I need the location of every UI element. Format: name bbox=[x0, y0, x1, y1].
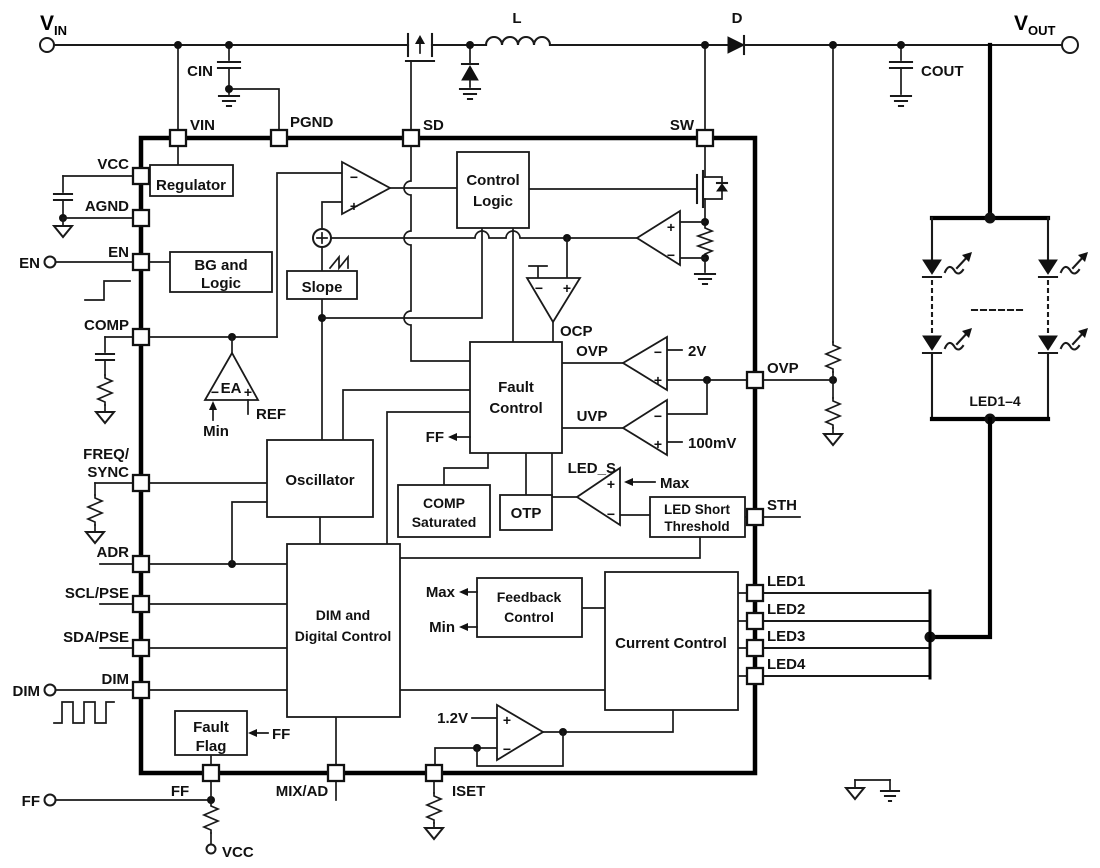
resistor-icon bbox=[88, 495, 102, 525]
led-icon bbox=[923, 328, 972, 353]
plus-sign: + bbox=[607, 476, 615, 492]
pin-comp bbox=[133, 329, 149, 345]
ground-earth-icon bbox=[695, 274, 715, 284]
vcc-terminal bbox=[207, 845, 216, 854]
ff-network bbox=[45, 781, 219, 854]
ref-100mv-label: 100mV bbox=[688, 435, 736, 452]
diode-label: D bbox=[732, 10, 743, 27]
led-s-label: LED_S bbox=[568, 460, 616, 477]
pin-sth bbox=[747, 509, 763, 525]
pin-led4 bbox=[747, 668, 763, 684]
bg-logic-label-1: BG and bbox=[194, 257, 247, 274]
pin-vcc bbox=[133, 168, 149, 184]
vout-terminal bbox=[1062, 37, 1078, 53]
pin-vin bbox=[170, 130, 186, 146]
ground-arrow-icon bbox=[425, 828, 443, 839]
control-logic-block bbox=[457, 152, 529, 228]
pin-ff bbox=[203, 765, 219, 781]
pin-label-ovp: OVP bbox=[767, 360, 799, 377]
pin-label-pgnd: PGND bbox=[290, 114, 334, 131]
dim-network bbox=[45, 685, 134, 724]
bg-logic-label-2: Logic bbox=[201, 275, 241, 292]
pin-label-vin: VIN bbox=[190, 117, 215, 134]
led-icon bbox=[1039, 328, 1088, 353]
arrow-left-icon bbox=[248, 729, 257, 737]
ea-label: EA bbox=[221, 380, 242, 397]
pin-label-en: EN bbox=[108, 244, 129, 261]
plus-sign: + bbox=[667, 219, 675, 235]
vin-terminal bbox=[40, 38, 54, 52]
comp-saturated-label-2: Saturated bbox=[412, 514, 477, 530]
diagram-canvas: VIN VOUT CIN COUT L D LED1–4 EN DIM FF V… bbox=[0, 0, 1100, 863]
resistor-icon bbox=[826, 398, 840, 428]
pin-label-agnd: AGND bbox=[85, 198, 129, 215]
ground-arrow-icon bbox=[54, 226, 72, 237]
otp-label: OTP bbox=[511, 505, 542, 522]
external-mosfet bbox=[406, 34, 434, 130]
ground-earth-icon bbox=[891, 96, 911, 106]
pin-ovp bbox=[747, 372, 763, 388]
ground-earth-icon bbox=[219, 96, 239, 106]
dim-terminal bbox=[45, 685, 56, 696]
minus-sign: − bbox=[654, 344, 662, 360]
plus-sign: + bbox=[654, 436, 662, 452]
pin-label-sda: SDA/PSE bbox=[63, 629, 129, 646]
fault-control-label-2: Control bbox=[489, 400, 542, 417]
fault-control-label-1: Fault bbox=[498, 379, 534, 396]
resistor-icon bbox=[427, 793, 441, 823]
pin-pgnd bbox=[271, 130, 287, 146]
ground-arrow-icon bbox=[96, 412, 114, 423]
pin-label-mixad: MIX/AD bbox=[276, 783, 329, 800]
vin-title: VIN bbox=[40, 12, 67, 38]
pin-label-comp: COMP bbox=[84, 317, 129, 334]
cout-label: COUT bbox=[921, 63, 964, 80]
en-network bbox=[45, 257, 134, 301]
ground-earth-icon bbox=[881, 791, 899, 801]
ovp-signal-label: OVP bbox=[576, 343, 608, 360]
led-group-label: LED1–4 bbox=[969, 393, 1021, 409]
pin-led2 bbox=[747, 613, 763, 629]
vcc-terminal-label: VCC bbox=[222, 844, 254, 861]
resistor-icon bbox=[698, 226, 712, 256]
ff-in-label: FF bbox=[272, 726, 290, 743]
uvp-signal-label: UVP bbox=[577, 408, 608, 425]
iset-network bbox=[425, 781, 443, 839]
vout-title: VOUT bbox=[1014, 12, 1056, 38]
minus-sign: − bbox=[654, 408, 662, 424]
internal-mosfet bbox=[697, 146, 727, 222]
regulator-label: Regulator bbox=[156, 177, 226, 194]
minus-sign: − bbox=[211, 384, 219, 400]
pin-label-led2: LED2 bbox=[767, 601, 805, 618]
ground-arrow-icon bbox=[824, 434, 842, 445]
body-diode-icon bbox=[717, 184, 727, 191]
pin-scl-pse bbox=[133, 596, 149, 612]
pin-label-ff: FF bbox=[171, 783, 189, 800]
fault-flag-label-2: Flag bbox=[196, 738, 227, 755]
pin-dim bbox=[133, 682, 149, 698]
led-icon bbox=[923, 252, 972, 277]
pin-label-freq: FREQ/ bbox=[83, 446, 130, 463]
led-short-label-1: LED Short bbox=[664, 502, 731, 517]
pin-sd bbox=[403, 130, 419, 146]
inductor bbox=[486, 37, 550, 45]
led-driver-block-diagram: VIN VOUT CIN COUT L D LED1–4 EN DIM FF V… bbox=[0, 0, 1100, 863]
ground-arrow-icon bbox=[846, 788, 864, 799]
comp-network bbox=[96, 337, 133, 423]
pin-label-led1: LED1 bbox=[767, 573, 805, 590]
ff-out-label: FF bbox=[426, 429, 444, 446]
pin-mixad bbox=[328, 765, 344, 781]
cin-label: CIN bbox=[187, 63, 213, 80]
rectifier-diode bbox=[728, 36, 744, 54]
dim-digital-label-1: DIM and bbox=[316, 607, 370, 623]
feedback-control-block bbox=[477, 578, 582, 637]
ref-label: REF bbox=[256, 406, 286, 423]
minus-sign: − bbox=[535, 280, 543, 296]
ff-terminal bbox=[45, 795, 56, 806]
freq-network bbox=[86, 483, 133, 543]
cout-capacitor bbox=[890, 45, 912, 106]
oscillator-label: Oscillator bbox=[285, 472, 354, 489]
pin-sda-pse bbox=[133, 640, 149, 656]
sawtooth-icon bbox=[330, 257, 348, 268]
pin-freq-sync bbox=[133, 475, 149, 491]
inductor-label: L bbox=[512, 10, 521, 27]
arrow-left-icon bbox=[624, 478, 633, 486]
pin-label-sth: STH bbox=[767, 497, 797, 514]
ff-terminal-label: FF bbox=[22, 793, 40, 810]
pwm-waveform-icon bbox=[54, 702, 114, 723]
pin-en bbox=[133, 254, 149, 270]
max-feedback-label: Max bbox=[426, 584, 456, 601]
current-control-label: Current Control bbox=[615, 635, 727, 652]
min-label: Min bbox=[203, 423, 229, 440]
arrow-left-icon bbox=[459, 588, 468, 596]
arrow-left-icon bbox=[448, 433, 457, 441]
pin-sw bbox=[697, 130, 713, 146]
feedback-label-1: Feedback bbox=[497, 589, 562, 605]
ground-arrow-icon bbox=[86, 532, 104, 543]
clamp-diode bbox=[460, 45, 480, 99]
minus-sign: − bbox=[667, 247, 675, 263]
pin-label-led3: LED3 bbox=[767, 628, 805, 645]
minus-sign: − bbox=[503, 741, 511, 757]
dim-terminal-label: DIM bbox=[13, 683, 41, 700]
control-logic-label-1: Control bbox=[466, 172, 519, 189]
pin-label-iset: ISET bbox=[452, 783, 485, 800]
slope-label: Slope bbox=[302, 279, 343, 296]
dim-digital-label-2: Digital Control bbox=[295, 628, 391, 644]
plus-sign: + bbox=[244, 384, 252, 400]
step-waveform-icon bbox=[85, 281, 130, 300]
plus-sign: + bbox=[563, 280, 571, 296]
ref-1p2v-label: 1.2V bbox=[437, 710, 468, 727]
resistor-icon bbox=[204, 803, 218, 833]
min-feedback-label: Min bbox=[429, 619, 455, 636]
led-icon bbox=[1039, 252, 1088, 277]
led-string bbox=[923, 45, 1088, 643]
plus-sign: + bbox=[350, 198, 358, 214]
pin-label-sd: SD bbox=[423, 117, 444, 134]
ref-2v-label: 2V bbox=[688, 343, 706, 360]
en-terminal-label: EN bbox=[19, 255, 40, 272]
pin-led3 bbox=[747, 640, 763, 656]
fault-control-block bbox=[470, 342, 562, 453]
control-logic-label-2: Logic bbox=[473, 193, 513, 210]
arrow-left-icon bbox=[459, 623, 468, 631]
arrow-up-icon bbox=[209, 401, 217, 410]
led-short-label-2: Threshold bbox=[664, 519, 729, 534]
ocp-label: OCP bbox=[560, 323, 593, 340]
minus-sign: − bbox=[607, 506, 615, 522]
plus-sign: + bbox=[503, 712, 511, 728]
fault-flag-label-1: Fault bbox=[193, 719, 229, 736]
feedback-label-2: Control bbox=[504, 609, 554, 625]
agnd-pgnd-tie bbox=[846, 780, 899, 801]
pin-led1 bbox=[747, 585, 763, 601]
pin-label-dim: DIM bbox=[102, 671, 130, 688]
pin-label-vcc: VCC bbox=[97, 156, 129, 173]
en-terminal bbox=[45, 257, 56, 268]
pin-label-scl: SCL/PSE bbox=[65, 585, 129, 602]
pin-agnd bbox=[133, 210, 149, 226]
pin-label-sw: SW bbox=[670, 117, 695, 134]
pin-label-led4: LED4 bbox=[767, 656, 806, 673]
ground-earth-icon bbox=[460, 89, 480, 99]
minus-sign: − bbox=[350, 169, 358, 185]
resistor-icon bbox=[826, 342, 840, 372]
comp-saturated-label-1: COMP bbox=[423, 495, 465, 511]
resistor-icon bbox=[98, 375, 112, 405]
pin-adr bbox=[133, 556, 149, 572]
pin-iset bbox=[426, 765, 442, 781]
max-led-s-label: Max bbox=[660, 475, 690, 492]
pin-label-sync: SYNC bbox=[87, 464, 129, 481]
ovp-divider bbox=[763, 342, 842, 445]
pin-label-adr: ADR bbox=[97, 544, 130, 561]
plus-sign: + bbox=[654, 372, 662, 388]
